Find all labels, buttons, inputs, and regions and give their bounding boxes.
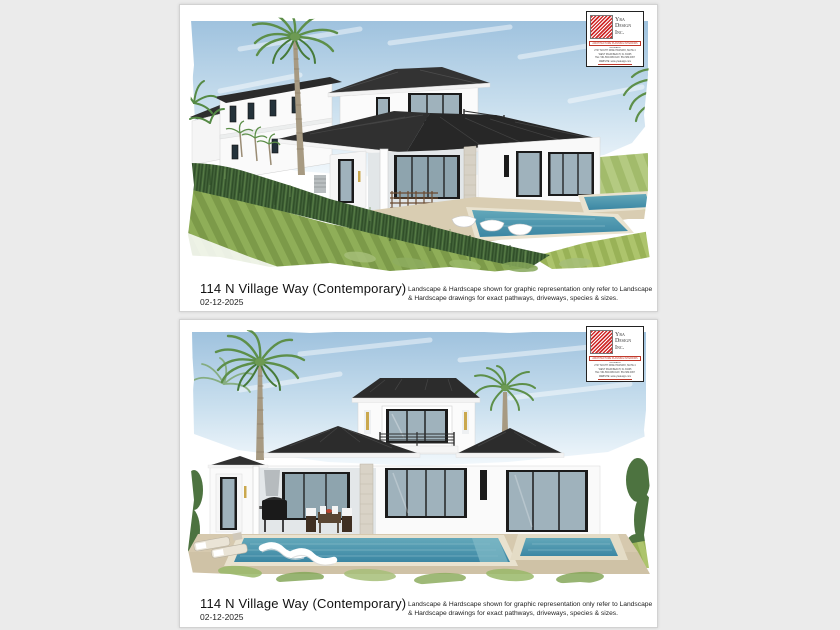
sheet-rear-elevation: Yra Design Inc. ARCHITECTURE PLANNING IN… — [179, 319, 658, 628]
project-title: 114 N Village Way (Contemporary) — [200, 281, 406, 296]
title-block: 114 N Village Way (Contemporary) 02-12-2… — [200, 281, 640, 307]
project-date: 02-12-2025 — [200, 297, 406, 307]
logo-tagline: ARCHITECTURE PLANNING INTERIORS — [589, 356, 641, 361]
company-logo: Yra Design Inc. ARCHITECTURE PLANNING IN… — [586, 326, 644, 382]
title-block: 114 N Village Way (Contemporary) 02-12-2… — [200, 596, 640, 622]
sheet-front-perspective: Yra Design Inc. ARCHITECTURE PLANNING IN… — [179, 4, 658, 312]
logo-rule — [598, 379, 632, 380]
logo-tagline: ARCHITECTURE PLANNING INTERIORS — [589, 41, 641, 46]
logo-fine-print: ALAMEDA 2747 SOUTH DIXIE HIGHWAY, SUITE … — [589, 47, 641, 62]
logo-fine-print: ALAMEDA 2747 SOUTH DIXIE HIGHWAY, SUITE … — [589, 362, 641, 377]
disclaimer: Landscape & Hardscape shown for graphic … — [408, 285, 652, 304]
project-date: 02-12-2025 — [200, 612, 406, 622]
logo-company-name: Yra Design Inc. — [615, 329, 631, 351]
disclaimer: Landscape & Hardscape shown for graphic … — [408, 600, 652, 619]
logo-mark-icon — [590, 15, 613, 39]
logo-company-name: Yra Design Inc. — [615, 14, 631, 36]
company-logo: Yra Design Inc. ARCHITECTURE PLANNING IN… — [586, 11, 644, 67]
logo-rule — [598, 64, 632, 65]
project-title: 114 N Village Way (Contemporary) — [200, 596, 406, 611]
logo-mark-icon — [590, 330, 613, 354]
